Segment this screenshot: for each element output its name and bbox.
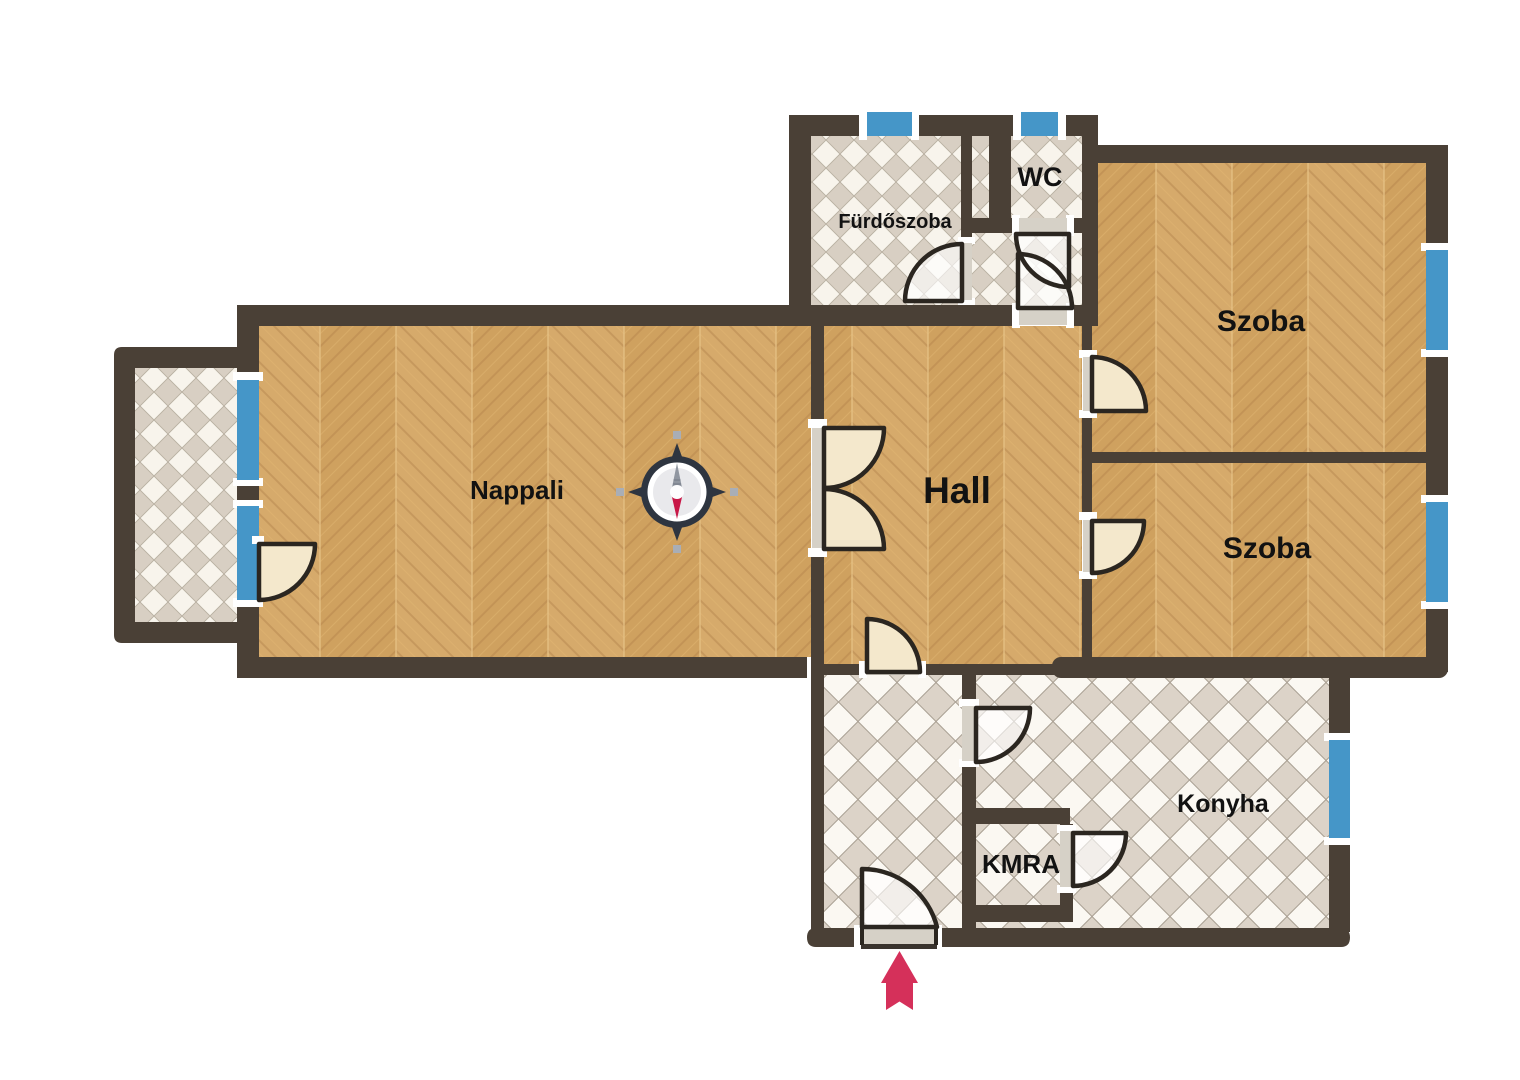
svg-text:Szoba: Szoba [1217, 305, 1306, 338]
svg-text:Szoba: Szoba [1223, 532, 1312, 565]
svg-text:Fürdőszoba: Fürdőszoba [838, 211, 952, 233]
svg-text:KMRA: KMRA [982, 849, 1060, 879]
svg-text:Nappali: Nappali [470, 475, 564, 505]
svg-text:Hall: Hall [923, 470, 991, 511]
svg-text:Konyha: Konyha [1177, 790, 1270, 818]
svg-text:WC: WC [1018, 162, 1063, 192]
